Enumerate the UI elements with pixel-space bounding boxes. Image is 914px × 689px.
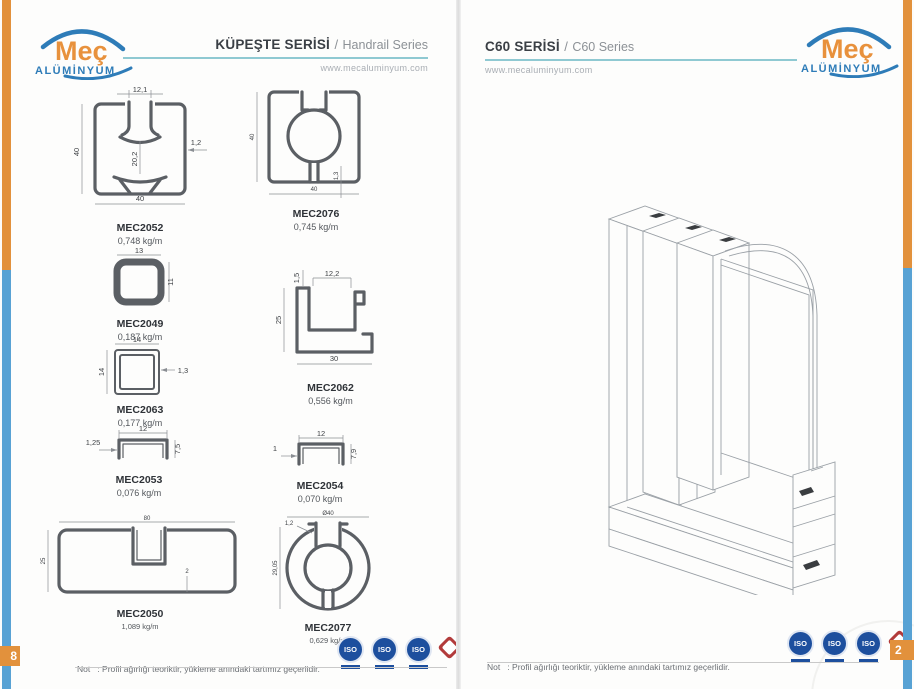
profile-code: MEC2050 xyxy=(35,608,245,620)
dim-height: 11 xyxy=(166,278,175,286)
left-edge-strip-blue xyxy=(2,270,11,689)
profile-mec2077: Ø40 1,2 29,05 MEC2077 0,629 kg/m xyxy=(269,510,387,645)
dim-wall: 1,3 xyxy=(178,366,188,375)
dim-height: 7,9 xyxy=(349,449,358,459)
profile-weight: 0,070 kg/m xyxy=(263,494,377,504)
website-url: www.mecaluminyum.com xyxy=(485,65,797,75)
dim-height: 14 xyxy=(97,368,106,376)
dim-width: 12 xyxy=(139,424,147,433)
profile-weight: 0,745 kg/m xyxy=(241,222,391,232)
dim-wall: 1 xyxy=(273,444,277,453)
mec-aluminyum-logo-icon: Meç ALÜMİNYUM xyxy=(31,24,135,80)
iso-badge-icon: ISO xyxy=(821,630,848,663)
iso-badge-icon: ISO xyxy=(787,630,814,663)
c60-isometric-section-drawing xyxy=(589,175,859,595)
profile-mec2076-drawing: 40 40 1,3 xyxy=(241,80,391,202)
iso-badge-icon: ISO xyxy=(337,636,364,669)
mec-aluminyum-logo-icon: Meç ALÜMİNYUM xyxy=(797,22,901,78)
dim-height: 40 xyxy=(250,133,256,140)
brand-name: Meç xyxy=(821,34,874,64)
dim-width: 12 xyxy=(317,430,325,438)
profile-code: MEC2063 xyxy=(85,404,195,416)
dim-height: 25 xyxy=(274,316,283,324)
dim-slot: 12,2 xyxy=(325,269,340,278)
dim-height: 40 xyxy=(72,148,81,156)
website-url: www.mecaluminyum.com xyxy=(123,63,428,73)
dim-width: 80 xyxy=(144,516,151,522)
profile-weight: 0,076 kg/m xyxy=(77,488,201,498)
profile-weight: 1,089 kg/m xyxy=(35,622,245,631)
profile-code: MEC2062 xyxy=(263,382,398,394)
title-divider: / xyxy=(564,39,568,54)
dim-diameter: Ø40 xyxy=(322,511,334,517)
series-title-en: C60 Series xyxy=(572,40,634,54)
series-title-en: Handrail Series xyxy=(343,38,428,52)
profile-mec2077-drawing: Ø40 1,2 29,05 xyxy=(269,510,387,616)
brand-subtitle: ALÜMİNYUM xyxy=(801,62,882,75)
profile-weight: 0,748 kg/m xyxy=(55,236,225,246)
brand-name: Meç xyxy=(55,36,108,66)
dim-width: 14 xyxy=(133,336,141,344)
profile-mec2076: 40 40 1,3 MEC2076 0,745 kg/m xyxy=(241,80,391,232)
profile-code: MEC2053 xyxy=(77,474,201,486)
dim-wall: 1,2 xyxy=(285,521,294,527)
page-gutter xyxy=(456,0,461,689)
profile-mec2049: 13 11 MEC2049 0,187 kg/m xyxy=(85,246,195,342)
dim-width: 30 xyxy=(330,354,338,363)
dim-slot: 12,1 xyxy=(133,86,148,94)
profile-mec2054-drawing: 12 1 7,9 xyxy=(263,430,377,474)
profile-mec2053: 12 1,25 7,5 MEC2053 0,076 kg/m xyxy=(77,424,201,498)
iso-badge-icon: ISO xyxy=(371,636,398,669)
profile-mec2052-drawing: 12,1 40 20,2 1,2 40 xyxy=(55,86,225,216)
dim-wall: 1,2 xyxy=(191,138,201,147)
right-page-title: C60 SERİSİ / C60 Series xyxy=(485,38,797,61)
profile-code: MEC2049 xyxy=(85,318,195,330)
dim-wall: 1,25 xyxy=(86,438,101,447)
profile-code: MEC2076 xyxy=(241,208,391,220)
dim-height: 25 xyxy=(41,557,47,564)
profile-mec2052: 12,1 40 20,2 1,2 40 MEC2052 0,748 kg/m xyxy=(55,86,225,246)
dim-wall: 1,3 xyxy=(334,171,340,180)
dim-wall: 1,5 xyxy=(292,273,301,283)
profile-mec2062: 1,5 12,2 25 30 MEC2062 0,556 kg/m xyxy=(263,258,398,406)
iso-badge-icon: ISO xyxy=(405,636,432,669)
profile-mec2050: 80 25 2 MEC2050 1,089 kg/m xyxy=(35,514,245,631)
left-edge-strip-orange xyxy=(2,0,11,270)
profile-mec2062-drawing: 1,5 12,2 25 30 xyxy=(263,258,398,376)
profile-code: MEC2052 xyxy=(55,222,225,234)
profile-mec2054: 12 1 7,9 MEC2054 0,070 kg/m xyxy=(263,430,377,504)
profile-mec2049-drawing: 13 11 xyxy=(85,246,195,312)
profile-code: MEC2054 xyxy=(263,480,377,492)
iso-badge-icon: ISO xyxy=(855,630,882,663)
dim-inner: 20,2 xyxy=(130,152,139,167)
dim-width: 13 xyxy=(135,246,143,255)
dim-wall: 2 xyxy=(185,569,189,575)
series-title-tr: KÜPEŞTE SERİSİ xyxy=(215,37,330,52)
title-divider: / xyxy=(334,37,338,52)
dim-width: 40 xyxy=(136,194,144,203)
right-page-number: 2 xyxy=(890,640,914,660)
left-page-title: KÜPEŞTE SERİSİ / Handrail Series xyxy=(123,36,428,59)
footer-rule xyxy=(487,662,879,663)
dim-height: 29,05 xyxy=(273,560,279,576)
profile-weight: 0,556 kg/m xyxy=(263,396,398,406)
left-page-number: 8 xyxy=(0,646,20,666)
brand-subtitle: ALÜMİNYUM xyxy=(35,64,116,77)
dim-width: 40 xyxy=(311,187,318,193)
profile-code: MEC2077 xyxy=(269,622,387,634)
profile-mec2063-drawing: 14 14 1,3 xyxy=(85,336,195,398)
left-page: Meç ALÜMİNYUM KÜPEŞTE SERİSİ / Handrail … xyxy=(11,0,456,689)
profile-mec2050-drawing: 80 25 2 xyxy=(35,514,245,602)
dim-height: 7,5 xyxy=(173,444,182,454)
right-edge-strip-orange xyxy=(903,0,912,268)
footer-rule xyxy=(75,667,447,668)
profile-mec2063: 14 14 1,3 MEC2063 0,177 kg/m xyxy=(85,336,195,428)
right-page: C60 SERİSİ / C60 Series www.mecaluminyum… xyxy=(461,0,901,689)
catalog-spread: Meç ALÜMİNYUM KÜPEŞTE SERİSİ / Handrail … xyxy=(0,0,914,689)
left-certification-badges: ISO ISO ISO xyxy=(337,636,462,669)
profile-mec2053-drawing: 12 1,25 7,5 xyxy=(77,424,201,468)
right-edge-strip-blue xyxy=(903,268,912,689)
series-title-tr: C60 SERİSİ xyxy=(485,39,560,54)
